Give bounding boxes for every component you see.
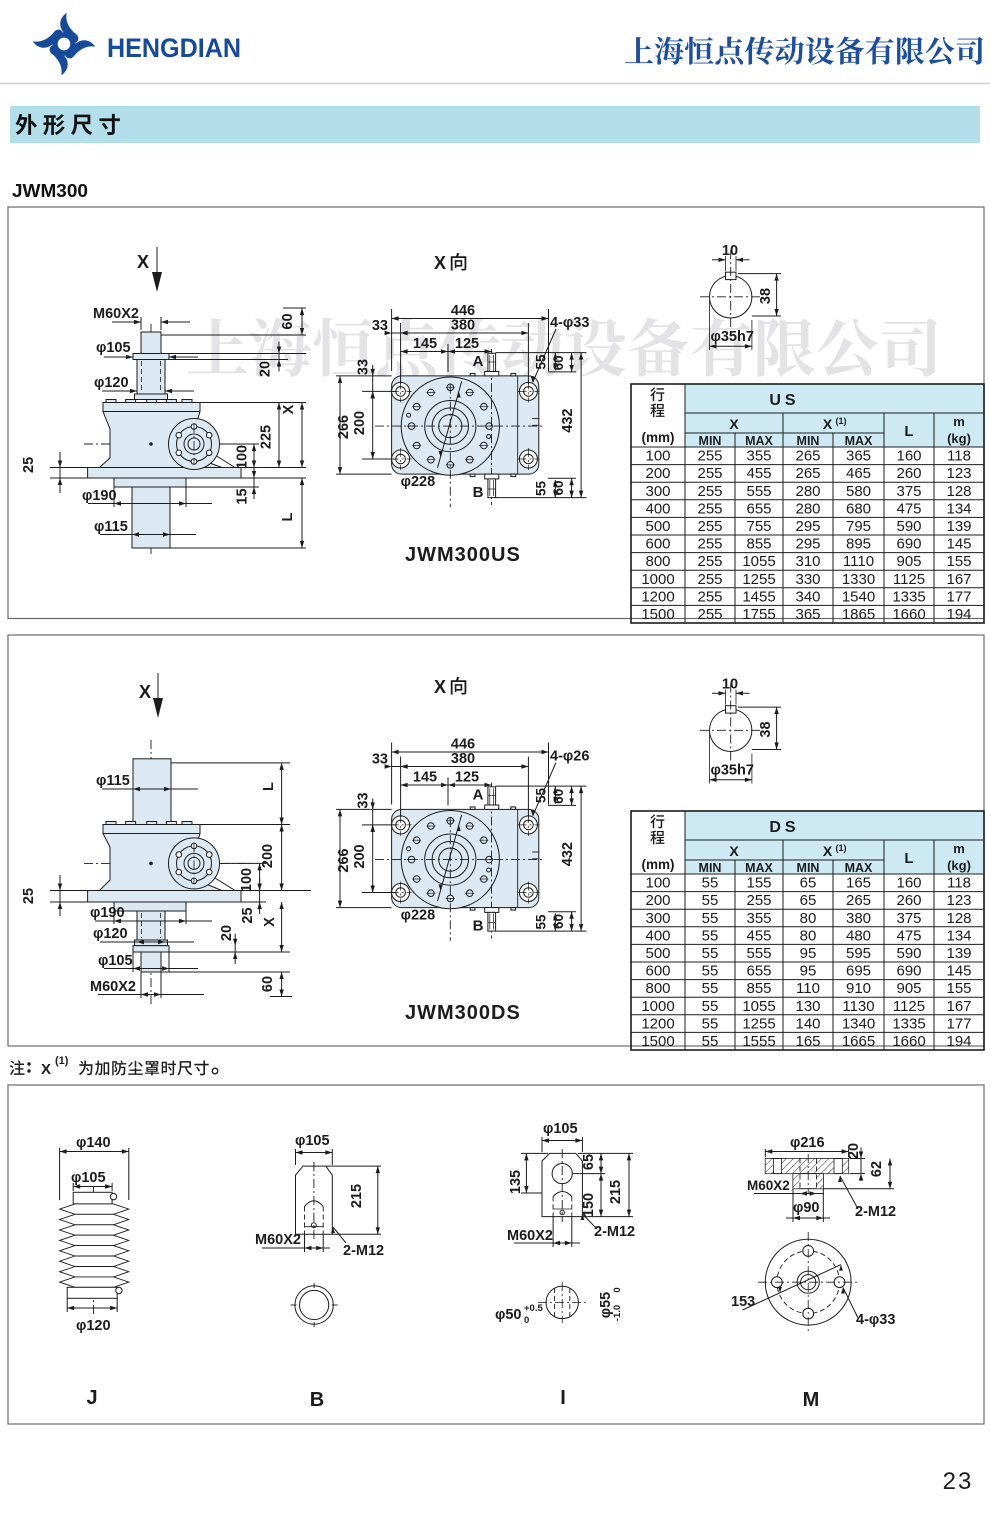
svg-text:600: 600 [645,536,670,553]
svg-text:100: 100 [645,448,670,465]
svg-text:80: 80 [800,927,817,944]
svg-text:123: 123 [946,465,971,482]
svg-text:X: X [434,253,446,273]
svg-text:139: 139 [946,518,971,535]
svg-text:1125: 1125 [893,998,925,1015]
svg-text:L: L [904,423,913,440]
svg-text:855: 855 [746,536,771,553]
svg-text:φ115: φ115 [96,773,130,789]
svg-text:255: 255 [697,500,722,517]
svg-text:55: 55 [702,1033,719,1050]
svg-text:340: 340 [795,588,820,605]
svg-text:155: 155 [946,553,971,570]
svg-text:145: 145 [946,963,971,980]
svg-text:145: 145 [946,536,971,553]
svg-text:φ120: φ120 [94,375,129,391]
svg-text:55: 55 [702,998,719,1015]
svg-text:1055: 1055 [742,998,775,1015]
svg-text:330: 330 [795,571,820,588]
svg-text:60: 60 [260,976,276,992]
svg-text:M60X2: M60X2 [93,306,139,322]
svg-text:0: 0 [612,1287,623,1292]
svg-text:2-M12: 2-M12 [594,1224,635,1240]
svg-text:95: 95 [800,945,817,962]
svg-text:HENGDIAN: HENGDIAN [107,33,241,63]
svg-text:4-φ33: 4-φ33 [856,1312,895,1328]
svg-text:1330: 1330 [842,571,875,588]
svg-text:255: 255 [697,571,722,588]
svg-text:795: 795 [846,518,871,535]
svg-text:215: 215 [349,1184,365,1208]
svg-text:4-φ33: 4-φ33 [550,315,589,331]
svg-text:95: 95 [800,963,817,980]
svg-text:500: 500 [645,518,670,535]
svg-text:I: I [560,1387,566,1409]
svg-text:194: 194 [946,1033,971,1050]
svg-text:455: 455 [746,927,771,944]
svg-text:355: 355 [746,448,771,465]
svg-text:800: 800 [645,553,670,570]
svg-text:1500: 1500 [641,1033,674,1050]
svg-text:255: 255 [697,553,722,570]
svg-text:125: 125 [455,336,479,352]
svg-text:A: A [473,353,484,370]
svg-text:1255: 1255 [742,1015,775,1032]
svg-text:300: 300 [645,483,670,500]
svg-text:MIN: MIN [699,861,722,875]
svg-text:33: 33 [356,359,372,375]
svg-text:255: 255 [697,588,722,605]
svg-text:JWM300US: JWM300US [405,544,521,566]
svg-text:φ105: φ105 [96,340,131,356]
svg-text:65: 65 [800,892,817,909]
svg-text:118: 118 [947,448,971,465]
svg-text:200: 200 [352,844,368,868]
svg-text:265: 265 [846,892,871,909]
svg-text:380: 380 [846,910,871,927]
svg-text:905: 905 [896,553,921,570]
svg-text:2-M12: 2-M12 [343,1243,384,1259]
svg-text:(1): (1) [836,416,847,426]
svg-text:380: 380 [451,318,475,334]
svg-text:25: 25 [21,457,37,473]
svg-text:φ105: φ105 [98,953,133,969]
svg-text:φ105: φ105 [295,1133,330,1149]
svg-text:25: 25 [21,888,37,904]
svg-text:690: 690 [896,963,921,980]
svg-text:100: 100 [239,868,255,892]
svg-text:260: 260 [896,892,921,909]
svg-text:167: 167 [946,571,971,588]
svg-text:1660: 1660 [892,1033,925,1050]
svg-text:1455: 1455 [742,588,775,605]
svg-text:375: 375 [896,910,921,927]
svg-text:690: 690 [896,536,921,553]
svg-text:(mm): (mm) [642,430,675,445]
svg-text:134: 134 [946,927,971,944]
svg-text:1665: 1665 [842,1033,875,1050]
svg-text:m: m [953,841,965,856]
svg-text:177: 177 [946,1015,971,1032]
svg-text:φ105: φ105 [543,1121,578,1137]
svg-text:1540: 1540 [842,588,875,605]
svg-text:1110: 1110 [843,553,874,570]
svg-text:20: 20 [846,1143,862,1159]
svg-text:m: m [953,414,965,429]
svg-text:145: 145 [413,336,437,352]
svg-text:255: 255 [697,518,722,535]
svg-text:X: X [729,416,739,432]
svg-text:200: 200 [645,465,670,482]
svg-text:135: 135 [508,1170,524,1194]
svg-text:65: 65 [800,875,817,892]
svg-text:55: 55 [534,914,549,930]
svg-text:165: 165 [795,1033,820,1050]
svg-text:680: 680 [846,500,871,517]
svg-text:X: X [41,1061,51,1078]
svg-text:1660: 1660 [892,606,925,623]
svg-text:295: 295 [795,518,820,535]
svg-text:177: 177 [946,588,971,605]
svg-text:M60X2: M60X2 [747,1178,790,1193]
svg-text:X: X [137,252,149,272]
svg-text:128: 128 [946,910,971,927]
svg-text:J: J [86,1387,97,1409]
svg-text:(kg): (kg) [947,431,971,446]
svg-text:165: 165 [846,875,871,892]
svg-text:φ35h7: φ35h7 [711,763,754,779]
svg-text:φ216: φ216 [790,1135,825,1151]
svg-text:200: 200 [352,411,368,435]
svg-text:500: 500 [645,945,670,962]
svg-text:475: 475 [896,500,921,517]
svg-text:1130: 1130 [842,998,874,1015]
svg-text:4-φ26: 4-φ26 [550,749,589,765]
svg-text:155: 155 [946,980,971,997]
svg-text:905: 905 [896,980,921,997]
svg-text:JWM300: JWM300 [12,180,88,201]
svg-text:38: 38 [758,721,774,737]
svg-text:55: 55 [702,945,719,962]
svg-text:X: X [139,682,151,702]
svg-text:465: 465 [846,465,871,482]
svg-text:55: 55 [702,1015,719,1032]
svg-text:60: 60 [551,480,566,495]
svg-text:110: 110 [796,980,820,997]
svg-text:65: 65 [581,1154,597,1170]
svg-text:255: 255 [746,892,771,909]
svg-text:480: 480 [846,927,871,944]
svg-text:265: 265 [795,448,820,465]
svg-text:55: 55 [702,875,719,892]
svg-text:MIN: MIN [797,861,820,875]
svg-text:215: 215 [608,1180,624,1204]
svg-text:140: 140 [795,1015,820,1032]
svg-text:φ140: φ140 [76,1135,111,1151]
svg-text:555: 555 [746,945,771,962]
svg-text:400: 400 [645,500,670,517]
svg-text:JWM300DS: JWM300DS [405,1002,521,1024]
svg-text:118: 118 [947,875,971,892]
svg-text:895: 895 [846,536,871,553]
svg-text:X: X [281,404,297,414]
svg-text:432: 432 [560,408,576,432]
svg-text:123: 123 [946,892,971,909]
svg-text:380: 380 [451,751,475,767]
svg-text:+0.5: +0.5 [524,1303,543,1314]
svg-text:1125: 1125 [893,571,925,588]
svg-text:255: 255 [697,448,722,465]
svg-text:1000: 1000 [641,998,674,1015]
svg-text:1255: 1255 [742,571,775,588]
svg-text:φ228: φ228 [401,474,436,490]
svg-text:194: 194 [946,606,971,623]
svg-text:55: 55 [702,910,719,927]
svg-text:55: 55 [534,788,549,804]
svg-text:266: 266 [336,415,352,439]
svg-text:365: 365 [795,606,820,623]
svg-text:φ115: φ115 [94,519,128,535]
svg-text:M60X2: M60X2 [255,1232,301,1248]
svg-text:1500: 1500 [641,606,674,623]
svg-text:300: 300 [645,910,670,927]
svg-text:φ190: φ190 [82,488,117,504]
svg-text:365: 365 [846,448,871,465]
svg-text:23: 23 [943,1468,974,1495]
svg-text:X: X [823,416,833,432]
svg-text:(kg): (kg) [947,858,971,873]
svg-text:L: L [280,512,296,521]
svg-text:(mm): (mm) [642,857,675,872]
svg-text:33: 33 [356,792,372,808]
svg-text:55: 55 [534,354,549,370]
svg-text:310: 310 [795,553,820,570]
svg-text:130: 130 [795,998,820,1015]
svg-text:(1): (1) [836,843,847,853]
svg-text:125: 125 [455,770,479,786]
svg-text:MAX: MAX [745,434,773,448]
svg-text:MIN: MIN [699,434,722,448]
svg-text:2-M12: 2-M12 [855,1204,896,1220]
svg-text:φ120: φ120 [76,1318,111,1334]
svg-text:128: 128 [946,483,971,500]
svg-text:φ190: φ190 [90,905,125,921]
svg-text:555: 555 [746,483,771,500]
svg-text:M60X2: M60X2 [90,979,136,995]
svg-text:55: 55 [702,927,719,944]
svg-text:0: 0 [524,1315,529,1326]
svg-text:X: X [434,677,446,697]
svg-text:25: 25 [240,907,256,923]
svg-text:20: 20 [258,361,274,377]
svg-text:1055: 1055 [742,553,775,570]
svg-text:55: 55 [702,980,719,997]
svg-text:1335: 1335 [892,588,925,605]
svg-text:280: 280 [795,483,820,500]
svg-text:B: B [310,1389,324,1411]
svg-text:φ35h7: φ35h7 [711,329,754,345]
svg-text:855: 855 [746,980,771,997]
svg-text:X: X [729,843,739,859]
svg-text:φ90: φ90 [793,1200,820,1216]
svg-text:1555: 1555 [742,1033,775,1050]
svg-text:595: 595 [846,945,871,962]
svg-text:1200: 1200 [641,588,674,605]
svg-text:800: 800 [645,980,670,997]
svg-text:600: 600 [645,963,670,980]
svg-text:580: 580 [846,483,871,500]
svg-text:62: 62 [869,1161,885,1177]
svg-text:φ228: φ228 [401,908,436,924]
svg-text:155: 155 [746,875,771,892]
svg-text:655: 655 [746,500,771,517]
svg-text:225: 225 [259,425,275,449]
svg-text:755: 755 [746,518,771,535]
svg-text:100: 100 [235,445,251,469]
svg-text:1335: 1335 [892,1015,925,1032]
svg-text:100: 100 [645,875,670,892]
svg-text:55: 55 [534,481,549,497]
svg-text:38: 38 [758,288,774,304]
svg-text:60: 60 [280,313,296,329]
svg-text:260: 260 [896,465,921,482]
svg-text:910: 910 [846,980,871,997]
svg-text:145: 145 [413,770,437,786]
svg-text:55: 55 [702,963,719,980]
svg-text:1000: 1000 [641,571,674,588]
svg-text:60: 60 [551,914,566,929]
svg-text:MIN: MIN [797,434,820,448]
svg-text:L: L [261,782,277,791]
svg-text:φ105: φ105 [71,1170,106,1186]
svg-text:55: 55 [702,892,719,909]
svg-text:60: 60 [551,355,566,370]
svg-text:A: A [473,787,484,804]
svg-text:400: 400 [645,927,670,944]
svg-text:B: B [473,918,484,935]
svg-text:1755: 1755 [742,606,775,623]
svg-text:590: 590 [896,518,921,535]
svg-text:455: 455 [746,465,771,482]
svg-text:280: 280 [795,500,820,517]
svg-text:60: 60 [551,789,566,804]
svg-text:15: 15 [235,488,251,504]
svg-text:X: X [823,843,833,859]
svg-text:295: 295 [795,536,820,553]
svg-text:255: 255 [697,465,722,482]
svg-text:(1): (1) [55,1055,69,1067]
svg-text:475: 475 [896,927,921,944]
svg-text:MAX: MAX [745,861,773,875]
svg-text:MAX: MAX [845,434,873,448]
svg-text:200: 200 [260,844,276,868]
svg-text:139: 139 [946,945,971,962]
svg-text:590: 590 [896,945,921,962]
svg-text:-1.0: -1.0 [612,1305,623,1321]
svg-text:20: 20 [219,925,235,941]
svg-text:355: 355 [746,910,771,927]
svg-text:153: 153 [731,1294,755,1310]
svg-text:B: B [473,484,484,501]
svg-text:255: 255 [697,483,722,500]
svg-text:375: 375 [896,483,921,500]
svg-text:150: 150 [581,1193,597,1217]
svg-text:255: 255 [697,606,722,623]
svg-text:80: 80 [800,910,817,927]
svg-text:M60X2: M60X2 [507,1228,553,1244]
svg-text:695: 695 [846,963,871,980]
svg-text:DS: DS [769,819,799,836]
svg-text:160: 160 [896,448,921,465]
svg-text:1200: 1200 [641,1015,674,1032]
svg-text:432: 432 [560,842,576,866]
svg-text:167: 167 [946,998,971,1015]
svg-text:655: 655 [746,963,771,980]
svg-text:L: L [904,850,913,867]
svg-text:1865: 1865 [842,606,875,623]
svg-text:200: 200 [645,892,670,909]
svg-text:US: US [769,392,799,409]
svg-text:265: 265 [795,465,820,482]
svg-text:266: 266 [336,848,352,872]
svg-text:1340: 1340 [842,1015,875,1032]
svg-text:M: M [803,1389,820,1411]
svg-text:160: 160 [896,875,921,892]
svg-text:255: 255 [697,536,722,553]
svg-text:MAX: MAX [845,861,873,875]
svg-text:φ120: φ120 [93,926,128,942]
svg-text:X: X [262,917,278,927]
svg-text:φ50: φ50 [495,1307,522,1323]
svg-text:134: 134 [946,500,971,517]
